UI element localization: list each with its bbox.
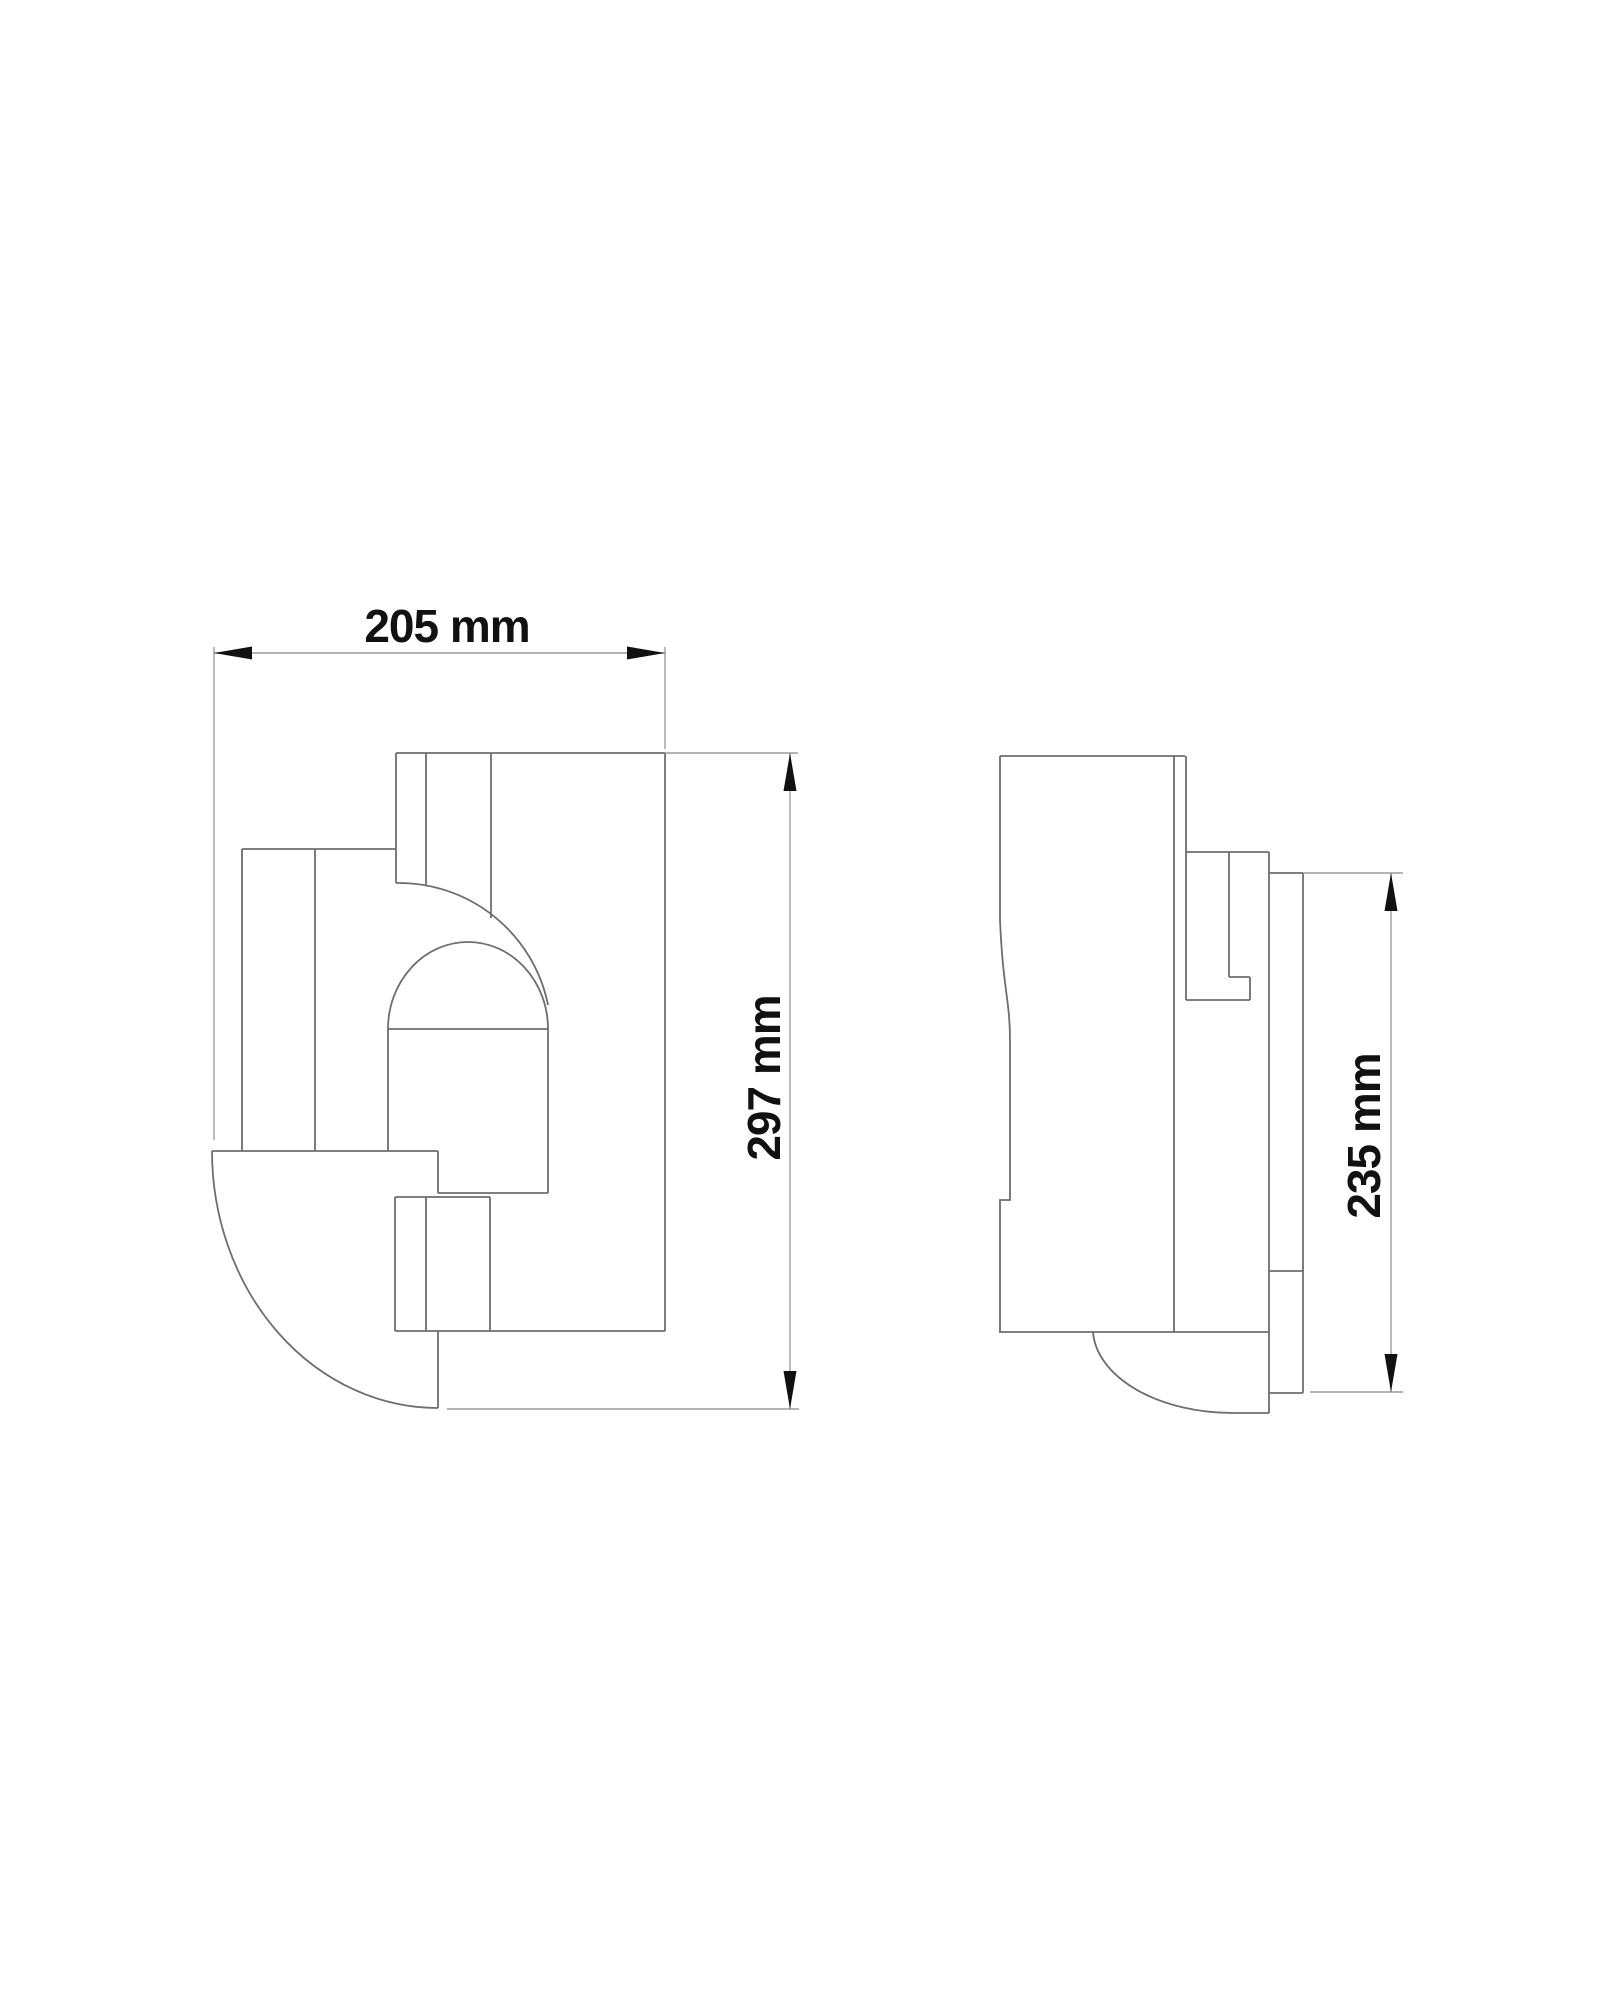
side-height-label: 235 mm xyxy=(1338,1053,1390,1218)
front-flap-quarter-arc xyxy=(212,1151,438,1408)
dimension-side-height: 235 mm xyxy=(1303,873,1403,1392)
technical-drawing-page: 205 mm 297 mm 235 mm xyxy=(0,0,1600,2000)
front-lower-block xyxy=(395,1197,490,1408)
front-left-bracket xyxy=(242,849,396,1151)
dimension-front-width: 205 mm xyxy=(214,600,665,1140)
front-height-label: 297 mm xyxy=(738,995,790,1160)
arrowhead-235-bottom xyxy=(1385,1354,1398,1392)
side-mount-steps xyxy=(1186,852,1269,1000)
arrowhead-205-left xyxy=(214,647,252,660)
front-width-label: 205 mm xyxy=(364,600,529,652)
dimension-drawing-canvas: 205 mm 297 mm 235 mm xyxy=(0,0,1600,2000)
front-dome-reflector xyxy=(388,942,548,1193)
side-flap-arc xyxy=(1093,1332,1269,1413)
side-box-outline xyxy=(999,756,1268,1332)
arrowhead-235-top xyxy=(1385,873,1398,911)
front-body-outline xyxy=(395,753,665,1331)
dimension-front-height: 297 mm xyxy=(447,753,799,1409)
arrowhead-205-right xyxy=(627,647,665,660)
front-left-strip-lines xyxy=(426,753,491,918)
side-shade-profile xyxy=(1269,852,1303,1413)
side-view xyxy=(999,756,1303,1413)
front-view xyxy=(212,753,665,1408)
front-shield-arc xyxy=(396,883,548,1005)
arrowhead-297-top xyxy=(784,753,797,791)
arrowhead-297-bottom xyxy=(784,1371,797,1409)
dimension-205-lines xyxy=(214,647,665,1140)
